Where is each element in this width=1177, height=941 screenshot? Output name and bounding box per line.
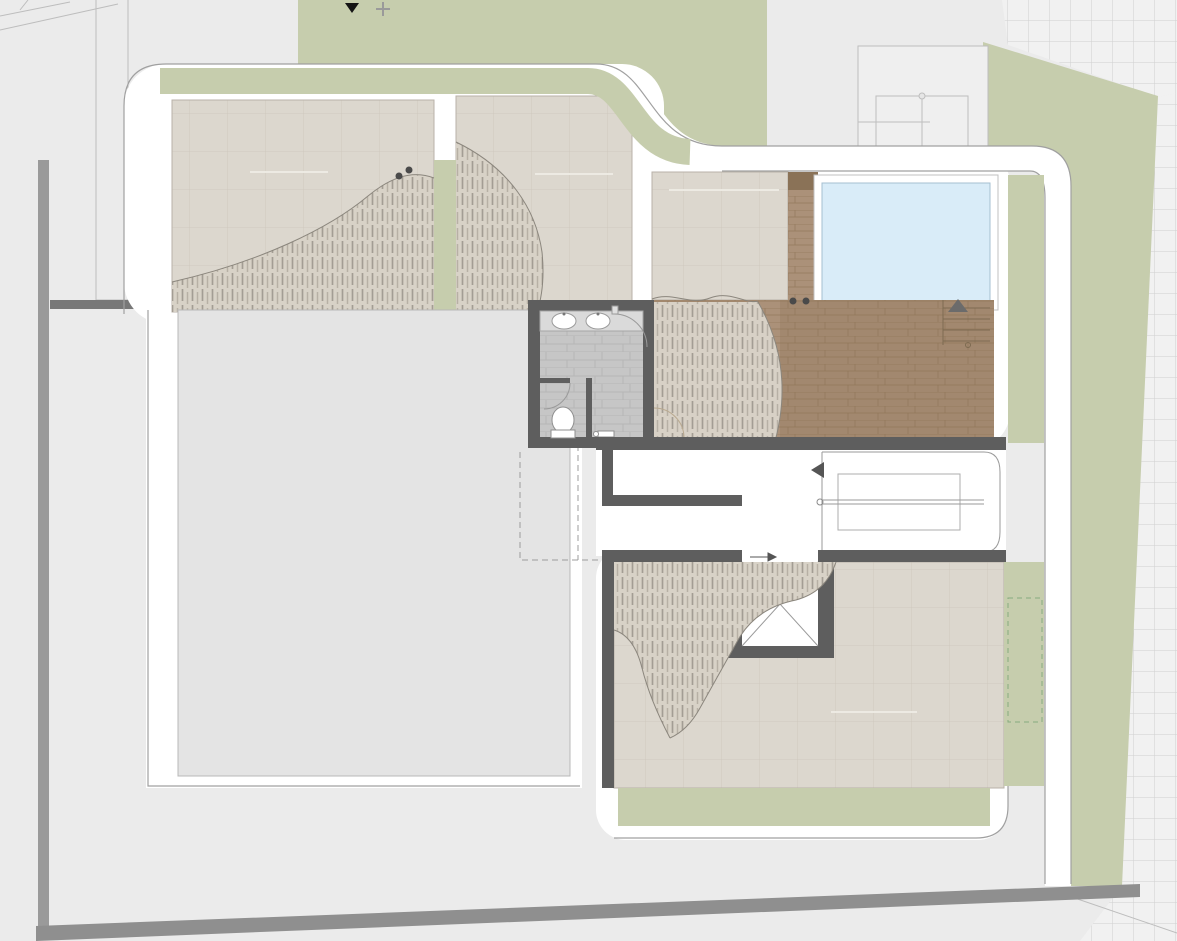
toilet bbox=[552, 407, 574, 433]
garden-common-paving bbox=[652, 172, 788, 300]
planting-strip-south bbox=[618, 788, 990, 826]
bathroom bbox=[528, 300, 654, 448]
wall bbox=[602, 550, 614, 788]
garden-201-label bbox=[831, 711, 917, 713]
neighbour-structure-topright bbox=[858, 46, 988, 146]
garden-common-label bbox=[669, 189, 779, 191]
deck-hatch-common bbox=[652, 296, 782, 445]
planting-strip-divider bbox=[434, 160, 456, 312]
wall bbox=[602, 440, 613, 506]
swimming-pool bbox=[822, 183, 990, 302]
site-plan bbox=[0, 0, 1177, 941]
garden-202-label bbox=[250, 171, 328, 173]
planting-strip-east-upper bbox=[1008, 175, 1044, 443]
wall bbox=[832, 550, 1006, 562]
wall bbox=[602, 495, 742, 506]
plan-drawing bbox=[0, 0, 1177, 941]
site-edge-west bbox=[38, 160, 49, 935]
lower-floor-room bbox=[178, 310, 570, 776]
planting-strip-east-lower bbox=[1004, 562, 1044, 786]
wall bbox=[596, 437, 1006, 450]
garden-203-label bbox=[535, 173, 613, 175]
wall bbox=[602, 550, 728, 562]
